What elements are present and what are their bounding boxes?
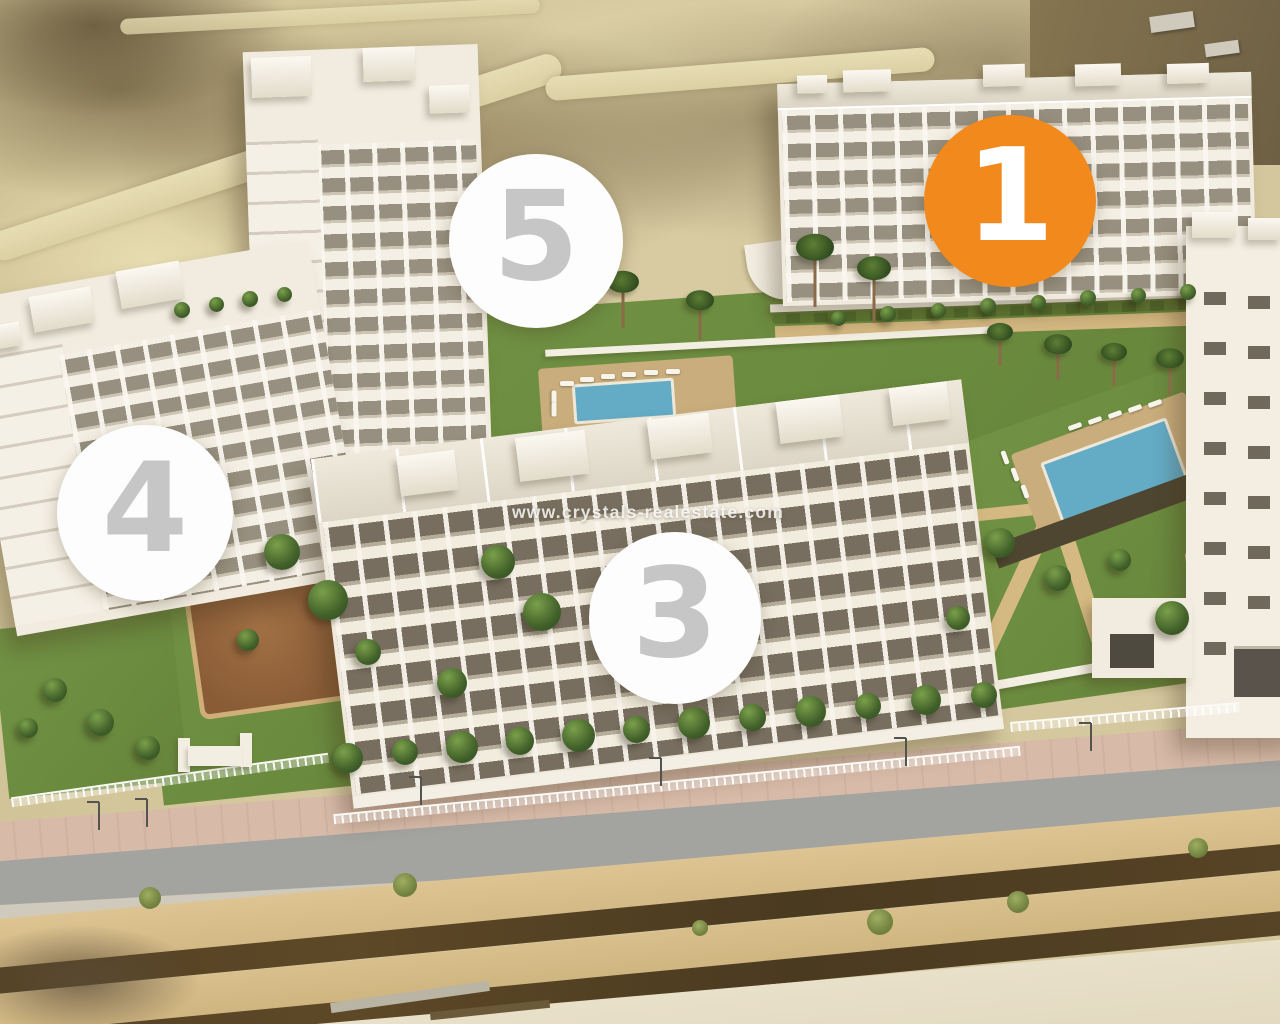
tree	[209, 297, 224, 312]
bottom-left-shadow	[0, 925, 200, 1024]
tree	[18, 718, 38, 738]
palm-fronds	[857, 256, 891, 280]
sun-lounger	[552, 403, 557, 417]
sun-lounger	[601, 374, 615, 379]
tree	[880, 306, 896, 322]
unit-marker-4[interactable]: 4	[57, 425, 233, 601]
building-1-roof-structure	[843, 69, 892, 92]
sun-lounger	[580, 377, 594, 382]
building-3-roof-structure	[647, 412, 713, 459]
unit-marker-5-label: 5	[493, 175, 579, 299]
unit-marker-4-label: 4	[102, 447, 188, 571]
shrub	[692, 920, 708, 936]
building-5-roof-structure	[251, 56, 312, 98]
tree	[739, 704, 766, 731]
building-right-tower	[1186, 226, 1280, 738]
tree	[174, 302, 190, 318]
tree	[264, 534, 300, 570]
tree	[1045, 565, 1071, 591]
tree	[980, 298, 996, 314]
tree	[1080, 290, 1096, 306]
shrub	[393, 873, 417, 897]
palm-fronds	[796, 234, 834, 261]
tree	[985, 528, 1015, 558]
sun-lounger	[666, 369, 680, 374]
street-lamp	[1090, 723, 1092, 751]
tree	[506, 727, 534, 755]
tree	[1109, 549, 1131, 571]
tower-windows	[1248, 296, 1270, 686]
tree	[392, 739, 418, 765]
tree	[437, 668, 467, 698]
palm-fronds	[987, 323, 1013, 341]
shrub	[1007, 891, 1029, 913]
palm-fronds	[1156, 348, 1184, 368]
unit-marker-3-label: 3	[632, 552, 718, 676]
street-lamp	[905, 738, 907, 766]
gate-door	[1110, 634, 1154, 668]
tree	[481, 545, 515, 579]
tree	[623, 716, 650, 743]
unit-marker-3[interactable]: 3	[589, 532, 761, 704]
building-5-roof-structure	[429, 84, 470, 113]
unit-marker-1-label: 1	[965, 133, 1054, 261]
building-1-roof-structure	[797, 75, 827, 94]
building-5-roof-structure	[363, 46, 416, 82]
building-4-roof-structure	[0, 321, 23, 351]
tree	[855, 693, 881, 719]
building-3-roof-structure	[776, 394, 845, 443]
tree	[277, 287, 292, 302]
front-left-lawn	[0, 611, 188, 799]
building-5-facade	[316, 139, 487, 462]
street-lamp	[98, 802, 100, 830]
palm-fronds	[1101, 343, 1127, 361]
tree	[136, 736, 160, 760]
building-1-roof-structure	[1167, 63, 1210, 84]
palm-fronds	[686, 290, 714, 310]
sun-lounger	[644, 370, 658, 375]
tree	[1180, 284, 1196, 300]
building-3-roof-structure	[515, 430, 590, 482]
tree	[1155, 601, 1189, 635]
tower-roof-structure	[1248, 218, 1280, 240]
tree	[43, 678, 67, 702]
shrub	[1188, 838, 1208, 858]
tower-roof-structure	[1192, 212, 1236, 238]
tree	[355, 639, 381, 665]
street-lamp	[420, 777, 422, 805]
aerial-site-plan: www.crystals-realestate.com 1 3 4 5	[0, 0, 1280, 1024]
unit-marker-1[interactable]: 1	[924, 115, 1096, 287]
tree	[523, 593, 561, 631]
tree	[795, 696, 826, 727]
tree	[831, 311, 846, 326]
tower-windows	[1204, 292, 1226, 682]
tree	[931, 303, 946, 318]
building-1-roof-structure	[983, 64, 1026, 87]
tower-garage-door	[1234, 646, 1280, 697]
tree	[333, 743, 363, 773]
tree	[87, 709, 114, 736]
shrub	[139, 887, 161, 909]
tree	[946, 606, 970, 630]
building-1-roof-structure	[1075, 63, 1122, 86]
building-3-roof-structure	[889, 381, 951, 426]
unit-marker-5[interactable]: 5	[449, 154, 623, 328]
street-lamp	[146, 799, 148, 827]
tree	[971, 682, 997, 708]
tree	[678, 707, 710, 739]
palm-fronds	[1044, 334, 1072, 354]
building-3-roof-structure	[396, 450, 458, 497]
tree	[237, 629, 259, 651]
tree	[308, 580, 348, 620]
watermark-text: www.crystals-realestate.com	[498, 502, 798, 523]
tree	[911, 685, 941, 715]
tree	[242, 291, 258, 307]
tree	[1031, 295, 1046, 310]
tree	[562, 719, 595, 752]
gate-panel	[188, 746, 242, 766]
building-4-roof-structure	[29, 286, 96, 332]
tree	[446, 731, 478, 763]
shrub	[867, 909, 893, 935]
street-lamp	[660, 758, 662, 786]
tree	[1131, 288, 1146, 303]
sun-lounger	[560, 381, 574, 386]
sun-lounger	[622, 372, 636, 377]
